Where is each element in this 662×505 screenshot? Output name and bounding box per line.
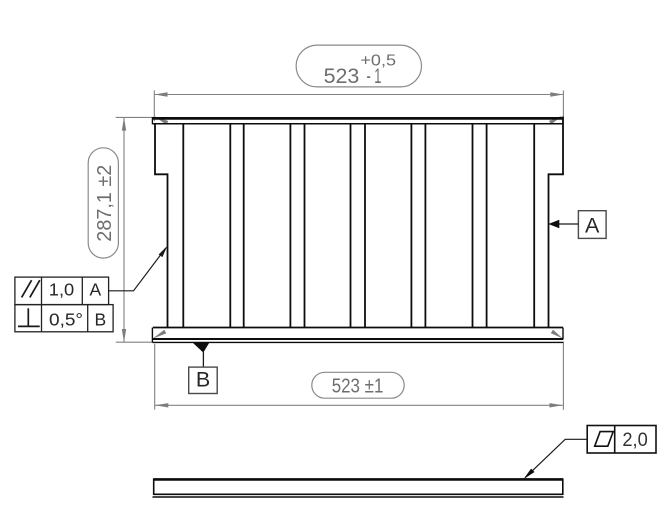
svg-text:A: A xyxy=(585,213,600,237)
svg-text:523 ±1: 523 ±1 xyxy=(332,375,384,397)
svg-text:B: B xyxy=(196,368,210,392)
svg-text:523: 523 xyxy=(324,65,360,88)
svg-text:0,5°: 0,5° xyxy=(49,309,83,329)
svg-text:1,0: 1,0 xyxy=(49,280,75,300)
svg-text:287,1 ±2: 287,1 ±2 xyxy=(93,165,116,242)
svg-text:B: B xyxy=(95,309,107,329)
svg-text:2,0: 2,0 xyxy=(622,430,647,451)
svg-text:+0,5: +0,5 xyxy=(360,53,396,70)
svg-text:A: A xyxy=(90,280,102,300)
